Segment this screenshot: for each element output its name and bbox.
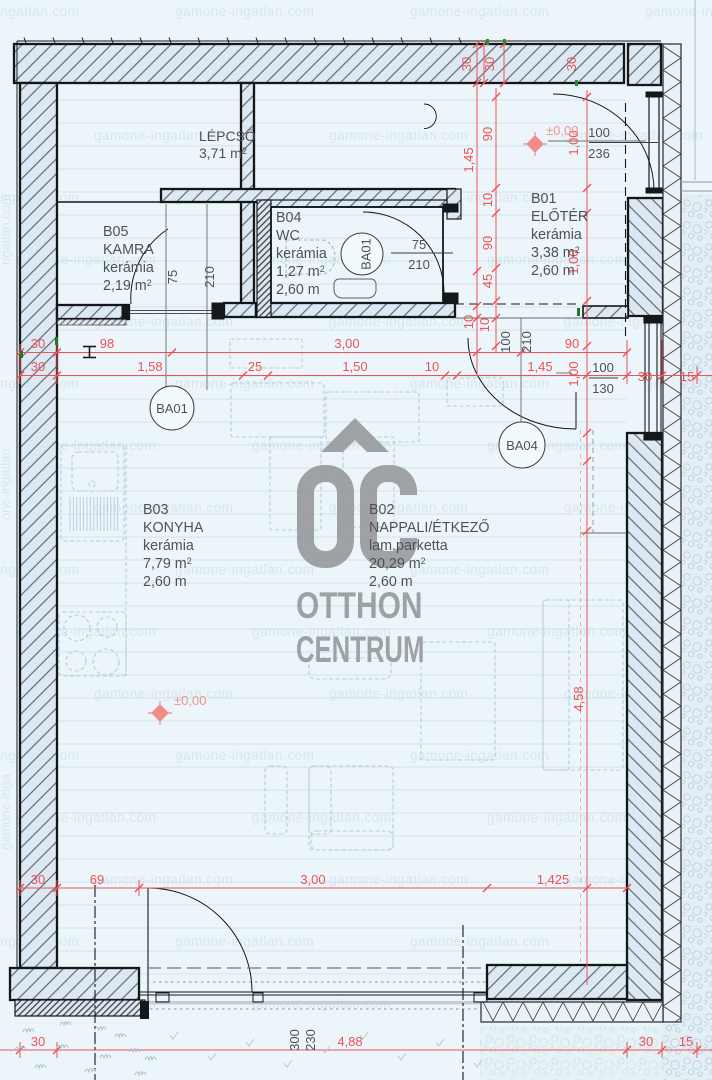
svg-text:210: 210: [519, 331, 534, 353]
svg-text:300: 300: [287, 1029, 302, 1051]
svg-text:BA01: BA01: [358, 238, 373, 270]
svg-text:gamone-ingatlan.com: gamone-ingatlan.com: [410, 4, 549, 19]
svg-text:gamone-ingatlan.com: gamone-ingatlan.com: [410, 748, 549, 763]
svg-text:4,88: 4,88: [337, 1034, 362, 1049]
svg-text:45: 45: [480, 274, 495, 288]
svg-text:1,45: 1,45: [461, 147, 476, 172]
svg-text:gamone-ingatlan.com: gamone-ingatlan.com: [329, 872, 468, 887]
svg-text:B03: B03: [143, 502, 168, 518]
svg-text:2,19 m2: 2,19 m2: [103, 278, 152, 294]
svg-text:90: 90: [565, 336, 579, 351]
svg-text:LÉPCSŐ: LÉPCSŐ: [199, 128, 256, 144]
svg-text:100: 100: [592, 360, 614, 375]
svg-text:kerámia: kerámia: [143, 538, 194, 554]
svg-text:CENTRUM: CENTRUM: [296, 628, 424, 670]
svg-text:3,00: 3,00: [334, 336, 359, 351]
svg-text:30: 30: [31, 336, 45, 351]
svg-text:130: 130: [592, 381, 614, 396]
svg-text:gamone-ingatlan.com: gamone-ingatlan.com: [0, 4, 79, 19]
svg-text:1,58: 1,58: [137, 359, 162, 374]
svg-text:NAPPALI/ÉTKEZŐ: NAPPALI/ÉTKEZŐ: [369, 519, 490, 536]
svg-text:30: 30: [31, 1034, 45, 1049]
svg-text:gamone-ingatlan.com: gamone-ingatlan.com: [410, 934, 549, 949]
svg-text:one-ingatlan: one-ingatlan: [0, 448, 13, 520]
svg-text:gamone-ingatlan.com: gamone-ingatlan.com: [175, 562, 314, 577]
svg-text:B02: B02: [369, 502, 394, 518]
svg-text:OTTHON: OTTHON: [296, 585, 423, 627]
svg-text:gamone-ingatlan.com: gamone-ingatlan.com: [410, 562, 549, 577]
svg-text:gamone-ingatlan.com: gamone-ingatlan.com: [645, 4, 712, 19]
svg-text:gamone-ingatlan.com: gamone-ingatlan.com: [94, 872, 233, 887]
svg-text:98: 98: [100, 336, 114, 351]
svg-text:210: 210: [408, 257, 430, 272]
svg-text:25: 25: [248, 359, 262, 374]
svg-text:90: 90: [480, 127, 495, 141]
svg-text:30: 30: [31, 872, 45, 887]
svg-text:BA04: BA04: [506, 438, 538, 453]
svg-text:10: 10: [461, 315, 476, 329]
svg-text:B05: B05: [103, 224, 128, 240]
svg-text:2,60 m: 2,60 m: [369, 574, 413, 590]
svg-text:WC: WC: [276, 228, 300, 244]
svg-text:2,60 m: 2,60 m: [531, 263, 575, 279]
svg-text:2,60 m: 2,60 m: [143, 574, 187, 590]
svg-text:1,50: 1,50: [342, 359, 367, 374]
svg-text:90: 90: [480, 236, 495, 250]
svg-text:3,71 m2: 3,71 m2: [199, 145, 247, 161]
svg-text:20,29 m2: 20,29 m2: [369, 556, 426, 572]
svg-text:B04: B04: [276, 210, 301, 226]
svg-text:±0,00: ±0,00: [174, 693, 206, 708]
svg-text:1,00: 1,00: [566, 361, 581, 386]
svg-text:2,60 m: 2,60 m: [276, 282, 320, 298]
svg-text:kerámia: kerámia: [103, 260, 154, 276]
svg-text:69: 69: [90, 872, 104, 887]
svg-text:30: 30: [482, 57, 497, 71]
svg-text:30: 30: [564, 57, 579, 71]
svg-text:gamone-ingatlan.com: gamone-ingatlan.com: [175, 4, 314, 19]
svg-text:gamone-ingatlan.com: gamone-ingatlan.com: [94, 686, 233, 701]
svg-text:3,38 m2: 3,38 m2: [531, 245, 580, 261]
svg-text:lam.parketta: lam.parketta: [369, 538, 448, 554]
svg-text:15: 15: [679, 1034, 693, 1049]
svg-text:236: 236: [588, 146, 610, 161]
svg-text:10: 10: [480, 193, 495, 207]
svg-text:gamone-ingatlan.com: gamone-ingatlan.com: [487, 624, 626, 639]
svg-text:30: 30: [638, 369, 652, 384]
svg-text:kerámia: kerámia: [531, 227, 582, 243]
svg-text:210: 210: [202, 266, 217, 288]
svg-text:100: 100: [588, 125, 610, 140]
svg-text:gamone-ingatlan.com: gamone-ingatlan.com: [175, 934, 314, 949]
svg-text:75: 75: [165, 270, 180, 284]
svg-text:1,27 m2: 1,27 m2: [276, 264, 325, 280]
svg-text:KONYHA: KONYHA: [143, 520, 204, 536]
svg-text:1,45: 1,45: [527, 359, 552, 374]
svg-text:15: 15: [680, 369, 694, 384]
svg-text:gamone-ingatlan.com: gamone-ingatlan.com: [175, 748, 314, 763]
svg-text:gamone-ingatlan.com: gamone-ingatlan.com: [329, 128, 468, 143]
svg-text:230: 230: [303, 1029, 318, 1051]
svg-text:B01: B01: [531, 191, 556, 207]
svg-text:gamone-ingatlan.com: gamone-ingatlan.com: [252, 810, 391, 825]
svg-text:gamone-inga: gamone-inga: [0, 773, 13, 850]
svg-text:ELŐTÉR: ELŐTÉR: [531, 208, 588, 225]
svg-text:4,58: 4,58: [571, 686, 586, 711]
svg-text:1,425: 1,425: [537, 872, 570, 887]
svg-text:30: 30: [639, 1034, 653, 1049]
svg-text:gamone-ingatlan.com: gamone-ingatlan.com: [329, 686, 468, 701]
svg-text:30: 30: [459, 57, 474, 71]
svg-text:gamone-ingatlan.com: gamone-ingatlan.com: [487, 810, 626, 825]
svg-text:ngatlan.com: ngatlan.com: [0, 194, 13, 265]
svg-text:±0,00: ±0,00: [546, 123, 578, 138]
svg-text:10: 10: [425, 359, 439, 374]
svg-text:KAMRA: KAMRA: [103, 242, 154, 258]
svg-text:3,00: 3,00: [300, 872, 325, 887]
svg-text:30: 30: [31, 359, 45, 374]
svg-text:kerámia: kerámia: [276, 246, 327, 262]
svg-text:100: 100: [498, 331, 513, 353]
svg-text:7,79 m2: 7,79 m2: [143, 556, 192, 572]
svg-text:BA01: BA01: [156, 401, 188, 416]
svg-text:10: 10: [477, 318, 492, 332]
svg-text:75: 75: [412, 237, 426, 252]
